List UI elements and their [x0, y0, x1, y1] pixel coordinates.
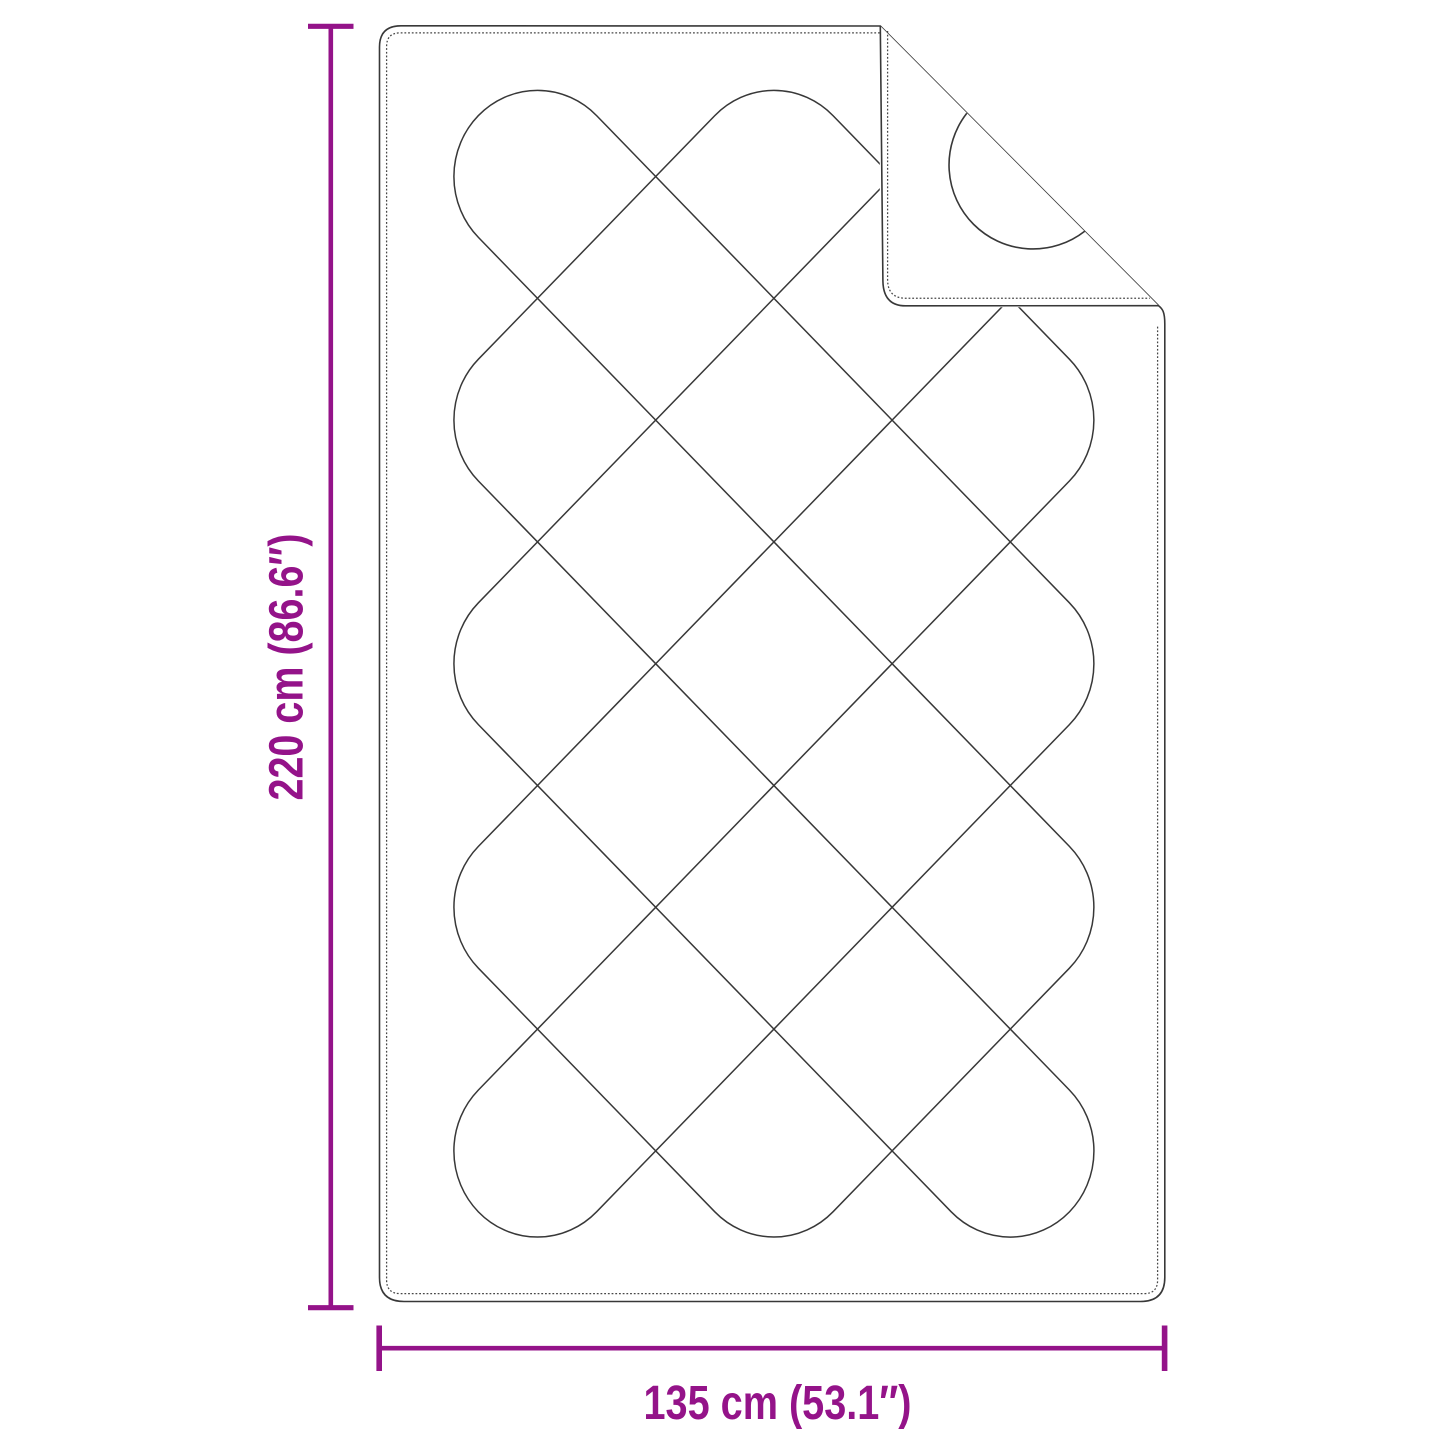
- svg-text:135 cm (53.1″): 135 cm (53.1″): [644, 1376, 912, 1430]
- svg-text:220 cm (86.6″): 220 cm (86.6″): [260, 534, 314, 801]
